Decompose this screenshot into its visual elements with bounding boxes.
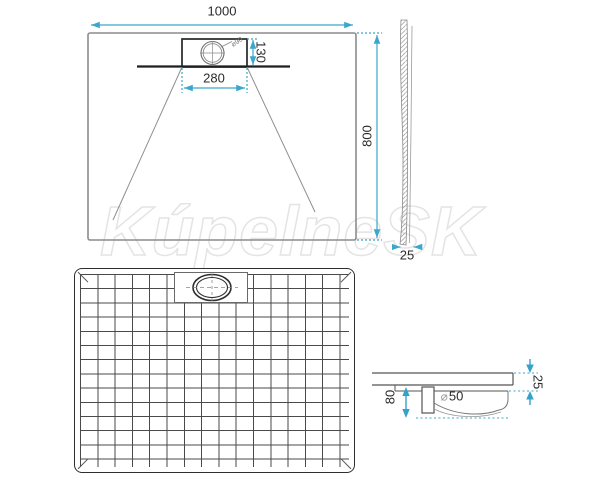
dim-detail-thickness-label: 25 — [531, 375, 546, 389]
side-profile-drawing — [392, 12, 434, 267]
drain-cover — [175, 273, 247, 302]
technical-drawing-canvas: KúpelneSK — [0, 0, 600, 500]
plan-view-drawing — [60, 0, 400, 262]
diameter-symbol: ⌀ — [441, 390, 448, 404]
dim-pipe-diameter-label: ⌀50 — [441, 389, 464, 404]
dim-drain-depth-label: 130 — [254, 41, 269, 63]
tray-slab-section — [372, 373, 513, 385]
slope-lines — [113, 67, 315, 220]
dim-width-label: 1000 — [208, 4, 237, 19]
dim-drain-width-label: 280 — [203, 71, 225, 86]
dimension-lines — [91, 25, 382, 240]
texture-view — [74, 268, 355, 473]
dim-trap-height-label: 80 — [383, 390, 398, 404]
dim-length-label: 800 — [360, 125, 375, 147]
drain-area-patch — [174, 272, 248, 303]
drain-circle — [200, 41, 232, 65]
profile-section — [400, 20, 412, 245]
dim-profile-thickness-label: 25 — [400, 248, 414, 263]
tray-outline — [88, 33, 356, 240]
diameter-value: 50 — [449, 389, 463, 404]
